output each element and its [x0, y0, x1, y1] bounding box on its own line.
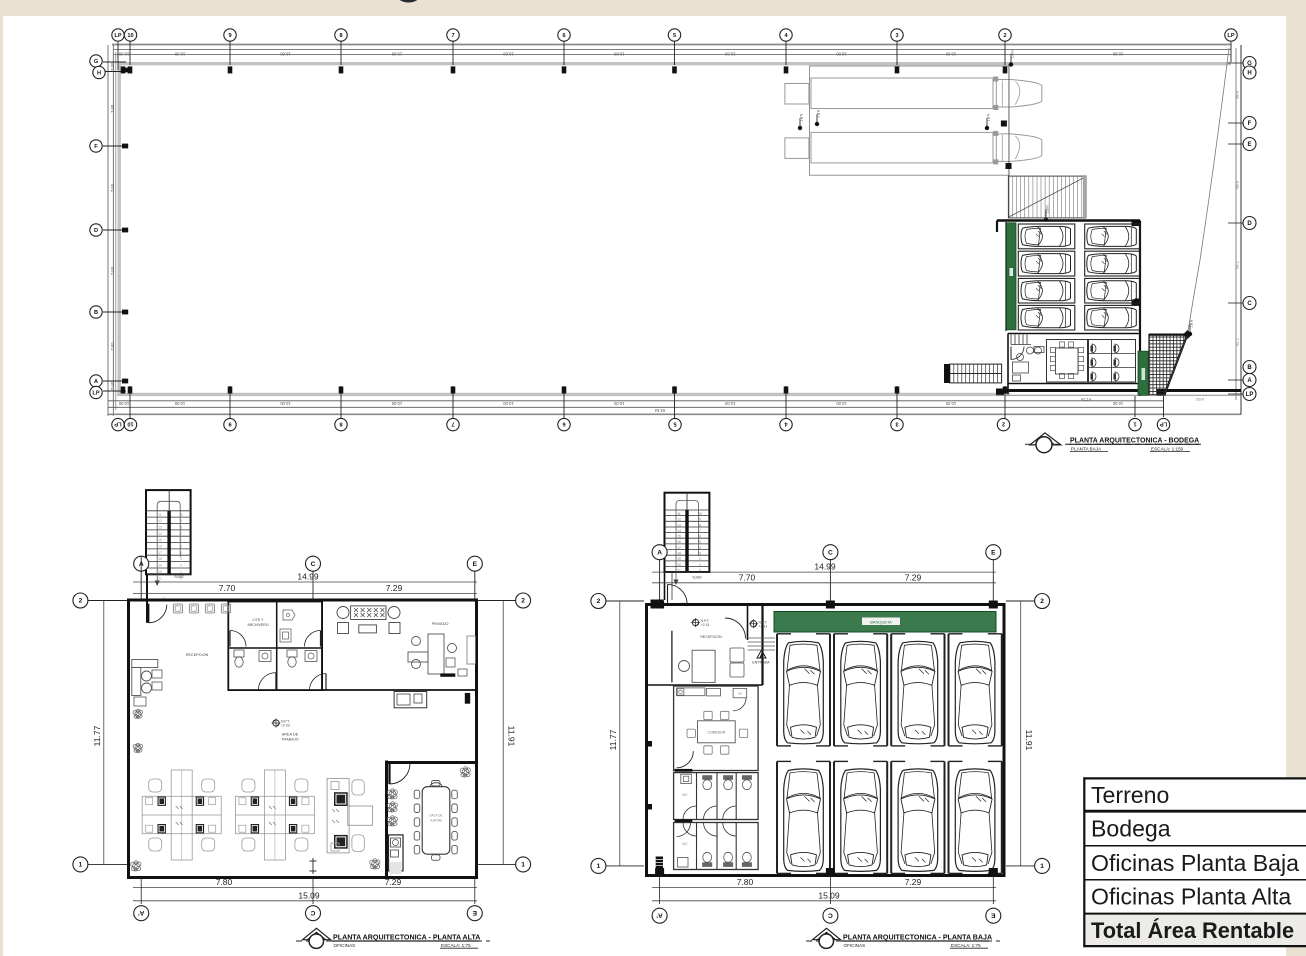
- svg-text:10.00: 10.00: [1112, 51, 1123, 56]
- svg-text:9.80: 9.80: [1235, 181, 1240, 190]
- svg-text:5: 5: [673, 33, 676, 39]
- svg-text:E: E: [991, 549, 996, 556]
- svg-text:D: D: [1247, 221, 1252, 227]
- svg-text:LITE Y: LITE Y: [253, 618, 265, 622]
- svg-text:SALA DE: SALA DE: [429, 814, 442, 818]
- svg-text:2: 2: [597, 598, 601, 605]
- svg-text:LP: LP: [114, 420, 121, 426]
- svg-text:13: 13: [158, 526, 162, 530]
- svg-text:OFICINAS: OFICINAS: [334, 943, 356, 948]
- svg-text:C: C: [310, 909, 315, 916]
- svg-text:2: 2: [1003, 33, 1006, 39]
- svg-text:1: 1: [1133, 420, 1136, 426]
- svg-text:H: H: [97, 71, 101, 77]
- svg-text:93.54: 93.54: [654, 408, 665, 413]
- svg-text:10: 10: [127, 33, 133, 39]
- svg-text:14.99: 14.99: [814, 562, 836, 572]
- svg-text:1: 1: [79, 862, 83, 869]
- svg-text:PLANTA ARQUITECTONICA - PLANTA: PLANTA ARQUITECTONICA - PLANTA BAJA: [843, 933, 992, 941]
- svg-text:SUBE: SUBE: [692, 576, 702, 580]
- svg-text:7.00: 7.00: [110, 342, 115, 351]
- svg-text:10.00: 10.00: [945, 51, 956, 56]
- svg-text:19: 19: [158, 564, 162, 568]
- svg-text:E: E: [1247, 142, 1251, 148]
- svg-text:F: F: [94, 144, 98, 150]
- svg-text:C: C: [1247, 301, 1252, 307]
- svg-text:LP: LP: [1246, 392, 1254, 398]
- svg-text:A': A': [656, 912, 663, 919]
- svg-text:1: 1: [597, 863, 601, 870]
- svg-text:10.00: 10.00: [174, 51, 185, 56]
- svg-text:15.09: 15.09: [298, 891, 320, 901]
- svg-text:23.0: 23.0: [1196, 397, 1205, 402]
- svg-text:PRIVADO: PRIVADO: [432, 622, 449, 626]
- svg-text:7: 7: [451, 420, 454, 426]
- svg-text:10.00: 10.00: [118, 51, 129, 56]
- svg-text:10: 10: [179, 513, 183, 517]
- svg-text:+2.33: +2.33: [281, 724, 290, 728]
- svg-text:N.P.T.: N.P.T.: [816, 110, 820, 118]
- svg-text:10.00: 10.00: [118, 401, 129, 406]
- svg-text:A: A: [657, 549, 662, 556]
- svg-text:9: 9: [228, 420, 231, 426]
- svg-text:14.99: 14.99: [297, 572, 319, 582]
- svg-text:3: 3: [895, 33, 898, 39]
- svg-text:SUBE: SUBE: [174, 575, 184, 579]
- svg-text:10.00: 10.00: [1112, 401, 1123, 406]
- svg-text:7.70: 7.70: [219, 583, 236, 593]
- svg-text:10.00: 10.00: [391, 401, 402, 406]
- svg-text:N.P.T.: N.P.T.: [1189, 320, 1193, 328]
- svg-text:2: 2: [180, 564, 182, 568]
- svg-text:11: 11: [158, 513, 162, 517]
- svg-text:10.00: 10.00: [503, 401, 514, 406]
- svg-text:PLANTA BAJA: PLANTA BAJA: [1071, 446, 1102, 451]
- svg-text:9: 9: [228, 33, 231, 39]
- svg-text:ENTRADA: ENTRADA: [752, 661, 770, 665]
- svg-text:A: A: [1247, 378, 1252, 384]
- svg-text:7.29: 7.29: [386, 583, 403, 593]
- svg-text:Bodega: Bodega: [1091, 816, 1171, 842]
- svg-text:LP: LP: [1227, 33, 1234, 39]
- svg-text:15.09: 15.09: [818, 891, 840, 901]
- svg-text:17: 17: [158, 551, 162, 555]
- svg-text:LP: LP: [1160, 420, 1167, 426]
- svg-text:10.00: 10.00: [836, 51, 847, 56]
- svg-text:5.60: 5.60: [1235, 91, 1240, 100]
- svg-text:C: C: [828, 549, 833, 556]
- svg-text:Oficinas Planta Alta: Oficinas Planta Alta: [1091, 884, 1291, 910]
- svg-text:2: 2: [521, 598, 525, 605]
- svg-text:1: 1: [1040, 863, 1044, 870]
- svg-text:10.00: 10.00: [613, 51, 624, 56]
- svg-text:7.20: 7.20: [1235, 261, 1240, 270]
- svg-text:7.70: 7.70: [739, 573, 756, 583]
- svg-text:RECEPCION: RECEPCION: [186, 653, 209, 657]
- svg-text:7: 7: [451, 33, 454, 39]
- svg-text:H: H: [1247, 71, 1251, 77]
- svg-text:E: E: [473, 561, 478, 568]
- svg-text:3: 3: [895, 420, 898, 426]
- svg-text:LP: LP: [114, 33, 121, 39]
- svg-text:11.91: 11.91: [507, 726, 517, 747]
- svg-text:12: 12: [158, 519, 162, 523]
- svg-text:TRABAJO: TRABAJO: [281, 738, 299, 742]
- svg-text:7.29: 7.29: [905, 573, 922, 583]
- svg-text:21: 21: [158, 576, 162, 580]
- svg-text:10.00: 10.00: [836, 401, 847, 406]
- svg-text:RECEPCION: RECEPCION: [700, 635, 722, 639]
- svg-text:18: 18: [158, 557, 162, 561]
- svg-text:1: 1: [180, 570, 182, 574]
- svg-text:E: E: [472, 909, 477, 916]
- svg-text:LP: LP: [92, 391, 99, 397]
- svg-text:AREA DE: AREA DE: [282, 733, 299, 737]
- svg-text:A': A': [138, 909, 145, 916]
- svg-text:C: C: [311, 561, 316, 568]
- svg-text:5: 5: [673, 420, 676, 426]
- svg-text:7.00: 7.00: [110, 104, 115, 113]
- svg-text:Oficinas Planta Baja: Oficinas Planta Baja: [1091, 850, 1299, 876]
- svg-text:G: G: [94, 59, 98, 65]
- svg-text:10.00: 10.00: [613, 401, 624, 406]
- svg-text:10.00: 10.00: [280, 401, 291, 406]
- svg-text:42.14: 42.14: [1081, 397, 1092, 402]
- svg-text:WC: WC: [682, 842, 688, 846]
- svg-text:20: 20: [158, 570, 162, 574]
- svg-text:ARCHIVERO: ARCHIVERO: [247, 623, 269, 627]
- svg-text:2: 2: [1040, 598, 1044, 605]
- svg-text:1: 1: [521, 862, 525, 869]
- svg-text:ESCALA: 1:75: ESCALA: 1:75: [951, 943, 981, 948]
- svg-text:E: E: [991, 912, 996, 919]
- svg-text:6: 6: [562, 420, 565, 426]
- svg-text:ESCALA: 1:75: ESCALA: 1:75: [441, 943, 471, 948]
- svg-text:7.80: 7.80: [216, 877, 233, 887]
- svg-text:PLANTA ARQUITECTONICA - BODEGA: PLANTA ARQUITECTONICA - BODEGA: [1070, 437, 1199, 444]
- svg-text:7.00: 7.00: [110, 381, 115, 390]
- svg-text:7.29: 7.29: [385, 877, 402, 887]
- svg-text:10.00: 10.00: [724, 401, 735, 406]
- svg-text:BANQUETA: BANQUETA: [870, 619, 892, 624]
- svg-text:7.00: 7.00: [110, 183, 115, 192]
- svg-text:OFICINAS: OFICINAS: [844, 943, 866, 948]
- svg-text:11.91: 11.91: [1024, 730, 1034, 751]
- svg-text:N.P.T.: N.P.T.: [1045, 205, 1049, 213]
- svg-text:F: F: [1248, 121, 1252, 127]
- svg-text:15: 15: [158, 538, 162, 542]
- svg-text:14: 14: [158, 532, 162, 536]
- svg-text:16: 16: [158, 545, 162, 549]
- svg-text:10.00: 10.00: [174, 401, 185, 406]
- svg-text:N.P.T.: N.P.T.: [986, 114, 990, 122]
- svg-text:10.00: 10.00: [280, 51, 291, 56]
- svg-text:7.00: 7.00: [110, 266, 115, 275]
- svg-text:D: D: [94, 228, 98, 234]
- svg-text:6: 6: [562, 33, 565, 39]
- svg-text:2: 2: [79, 598, 83, 605]
- svg-text:C: C: [828, 912, 833, 919]
- svg-text:10: 10: [127, 420, 133, 426]
- svg-text:N.P.T.: N.P.T.: [799, 114, 803, 122]
- svg-text:Terreno: Terreno: [1091, 782, 1169, 808]
- svg-text:WC: WC: [682, 793, 688, 797]
- svg-text:8: 8: [339, 33, 342, 39]
- svg-text:2: 2: [1002, 420, 1005, 426]
- svg-text:10.00: 10.00: [724, 51, 735, 56]
- svg-text:7.70: 7.70: [1235, 338, 1240, 347]
- svg-text:11.77: 11.77: [608, 729, 618, 750]
- svg-text:10.00: 10.00: [945, 401, 956, 406]
- svg-text:+2.13: +2.13: [759, 624, 768, 628]
- svg-text:N.P.T.: N.P.T.: [1010, 50, 1014, 58]
- svg-text:Total Área Rentable: Total Área Rentable: [1091, 918, 1294, 943]
- svg-text:3: 3: [180, 557, 182, 561]
- svg-text:B: B: [1247, 365, 1252, 371]
- svg-text:10.00: 10.00: [391, 51, 402, 56]
- svg-text:JUNTAS: JUNTAS: [430, 819, 442, 823]
- svg-text:8: 8: [339, 420, 342, 426]
- svg-text:B: B: [94, 310, 98, 316]
- svg-text:7.00: 7.00: [110, 62, 115, 71]
- svg-text:7.29: 7.29: [905, 877, 922, 887]
- svg-text:ESCALA: 1:150: ESCALA: 1:150: [1151, 446, 1184, 451]
- svg-text:+2.13: +2.13: [701, 623, 710, 627]
- svg-text:7.80: 7.80: [737, 877, 754, 887]
- svg-text:10.00: 10.00: [503, 51, 514, 56]
- svg-text:PLANTA ARQUITECTONICA - PLANTA: PLANTA ARQUITECTONICA - PLANTA ALTA: [333, 933, 480, 941]
- svg-text:A: A: [94, 379, 98, 385]
- svg-text:11.77: 11.77: [92, 725, 102, 746]
- svg-text:COMEDOR: COMEDOR: [708, 730, 726, 734]
- svg-text:20: 20: [738, 692, 742, 696]
